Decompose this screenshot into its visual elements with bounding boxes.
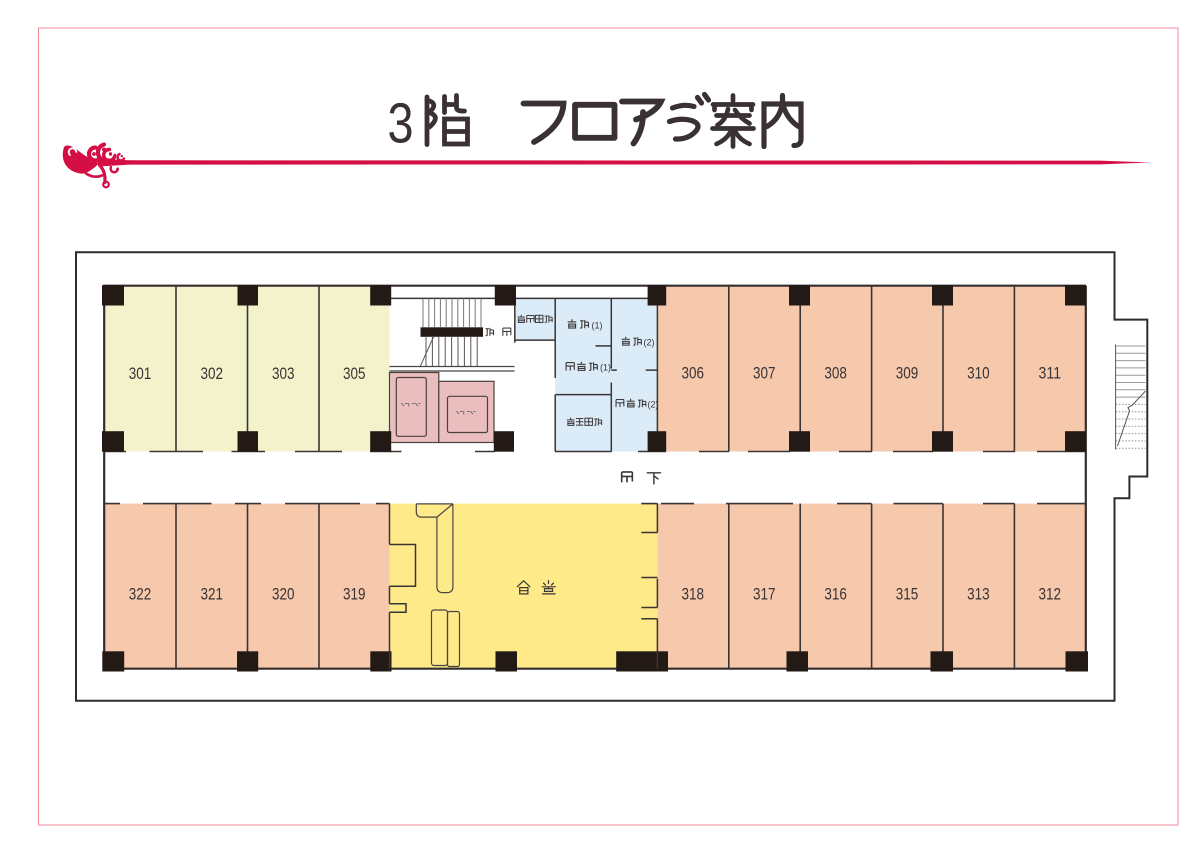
svg-text:308: 308 bbox=[824, 364, 847, 383]
svg-text:(2): (2) bbox=[644, 338, 655, 348]
svg-text:310: 310 bbox=[967, 364, 990, 383]
svg-text:320: 320 bbox=[272, 585, 295, 604]
svg-text:302: 302 bbox=[200, 364, 223, 383]
svg-text:309: 309 bbox=[896, 364, 919, 383]
svg-text:(1): (1) bbox=[592, 320, 603, 330]
svg-text:318: 318 bbox=[682, 585, 705, 604]
svg-text:319: 319 bbox=[343, 585, 366, 604]
svg-text:(1): (1) bbox=[600, 363, 611, 373]
svg-text:305: 305 bbox=[343, 364, 366, 383]
svg-text:322: 322 bbox=[129, 585, 152, 604]
svg-text:3: 3 bbox=[388, 92, 414, 156]
svg-text:313: 313 bbox=[967, 585, 990, 604]
svg-text:316: 316 bbox=[824, 585, 847, 604]
svg-text:307: 307 bbox=[753, 364, 776, 383]
svg-text:321: 321 bbox=[200, 585, 223, 604]
svg-text:317: 317 bbox=[753, 585, 776, 604]
svg-text:301: 301 bbox=[129, 364, 152, 383]
svg-text:312: 312 bbox=[1039, 585, 1062, 604]
svg-text:311: 311 bbox=[1039, 364, 1062, 383]
svg-text:315: 315 bbox=[896, 585, 919, 604]
svg-text:306: 306 bbox=[682, 364, 705, 383]
svg-text:(2): (2) bbox=[648, 399, 659, 409]
svg-text:303: 303 bbox=[272, 364, 295, 383]
